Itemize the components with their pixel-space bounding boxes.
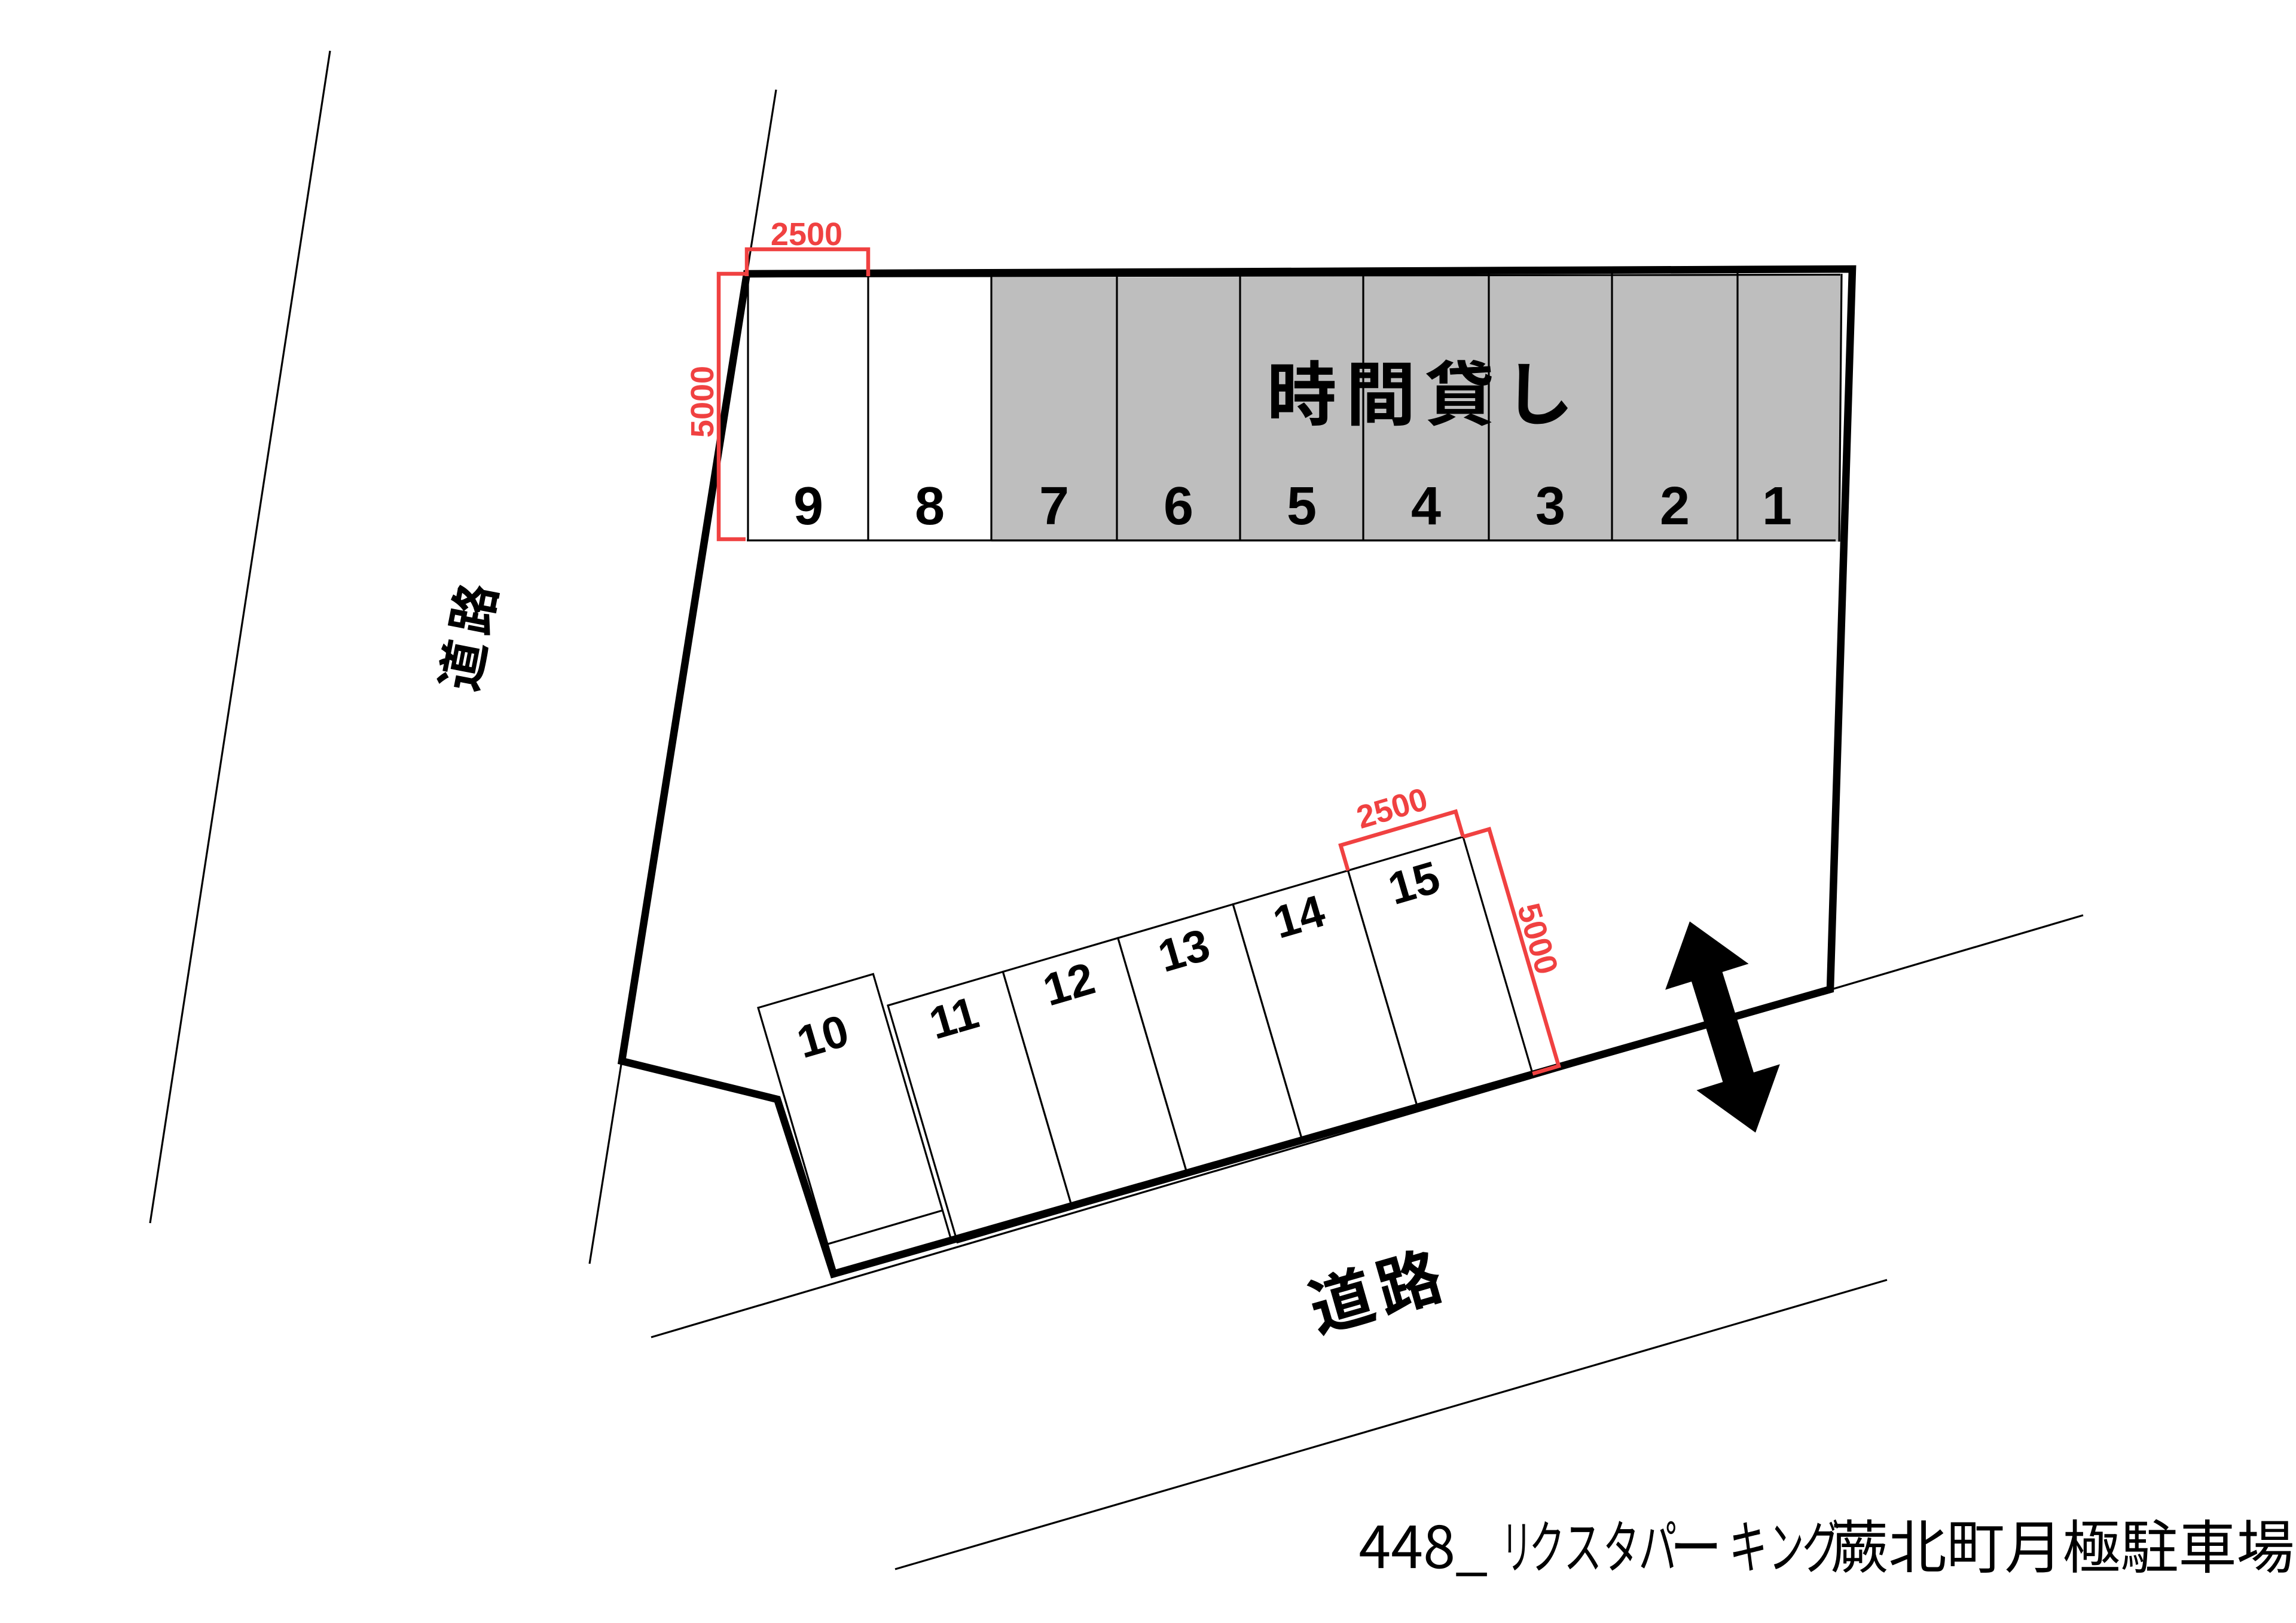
svg-text:2500: 2500 xyxy=(771,216,842,252)
svg-text:9: 9 xyxy=(793,476,823,536)
svg-text:2: 2 xyxy=(1660,476,1690,536)
svg-text:5: 5 xyxy=(1287,476,1317,536)
svg-text:5000: 5000 xyxy=(685,366,720,438)
svg-text:1: 1 xyxy=(1762,476,1792,536)
svg-text:7: 7 xyxy=(1039,476,1069,536)
svg-text:6: 6 xyxy=(1164,476,1193,536)
svg-text:8: 8 xyxy=(915,476,945,536)
svg-text:3: 3 xyxy=(1535,476,1565,536)
svg-text:4: 4 xyxy=(1411,476,1441,536)
